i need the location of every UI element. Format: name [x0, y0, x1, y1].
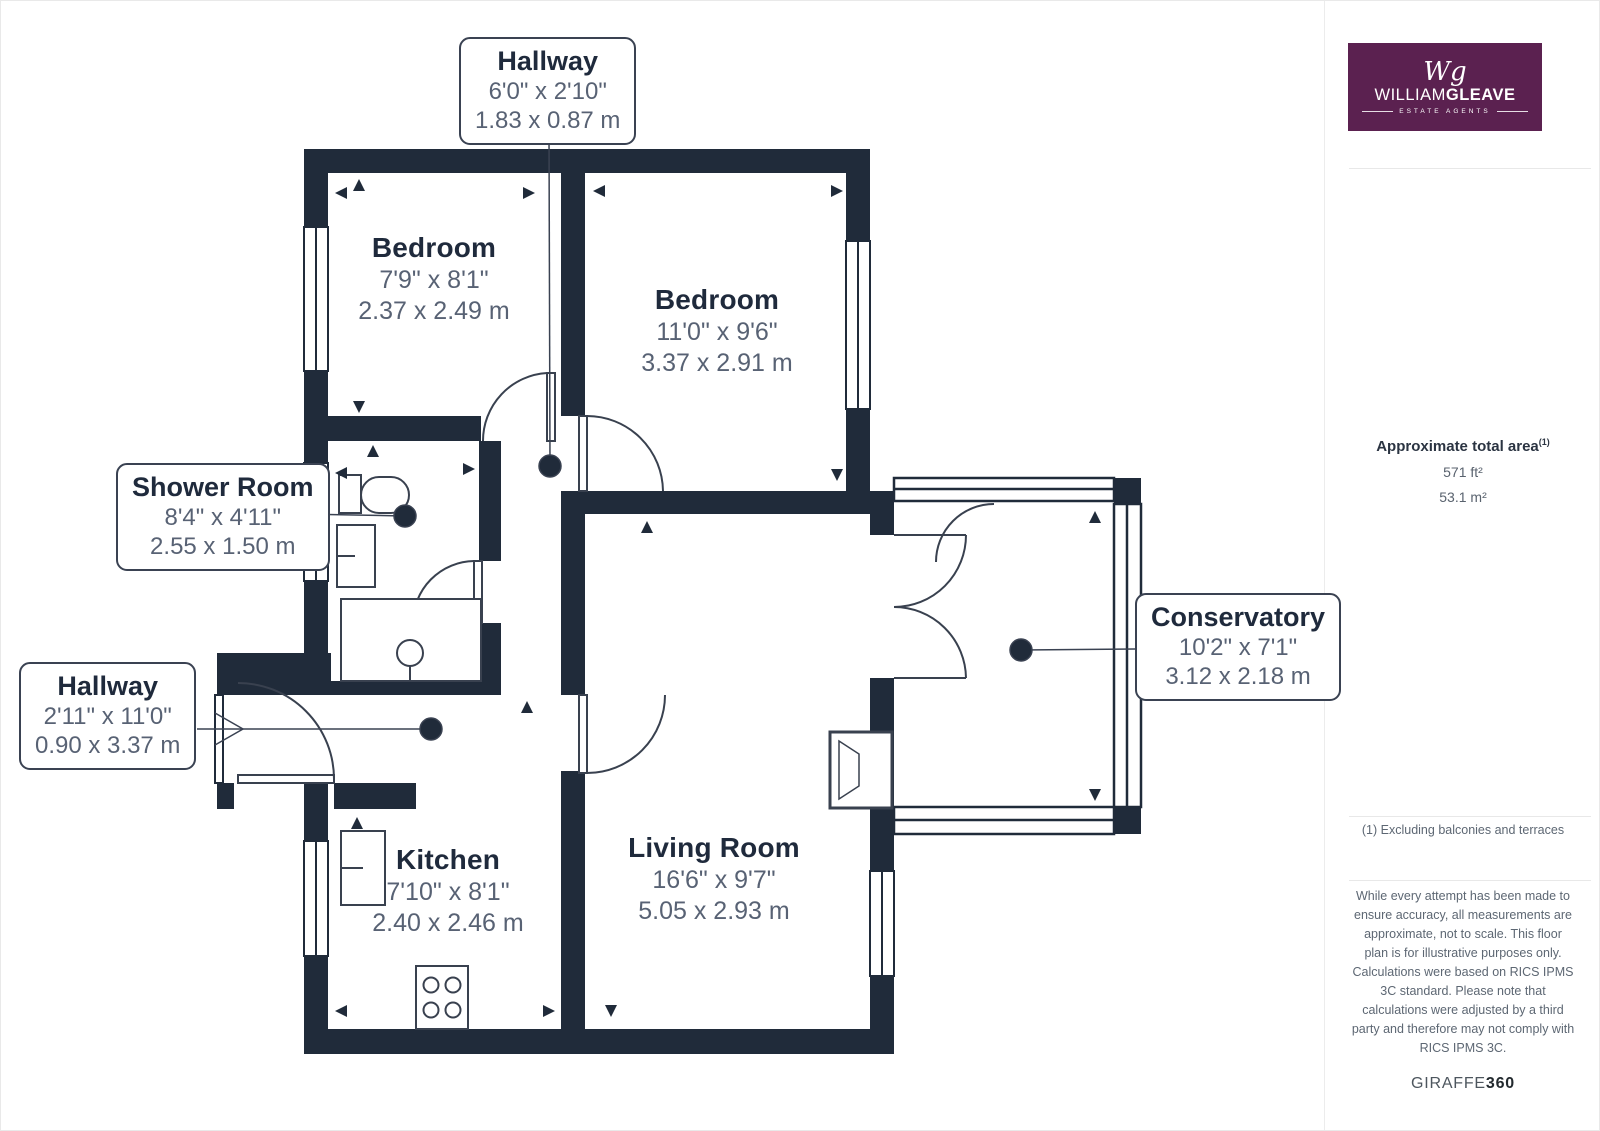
sidebar-divider: [1349, 816, 1591, 817]
total-area-title-text: Approximate total area: [1376, 438, 1539, 455]
room-label-bedroom-2: Bedroom 11'0" x 9'6" 3.37 x 2.91 m: [641, 284, 792, 378]
callout-name: Hallway: [475, 46, 620, 77]
agency-name-first: WILLIAM: [1375, 86, 1446, 104]
room-dim-imperial: 7'9" x 8'1": [358, 266, 509, 295]
disclaimer-accuracy: While every attempt has been made to ens…: [1351, 887, 1575, 963]
tagline-text: ESTATE AGENTS: [1399, 108, 1491, 115]
sidebar-divider: [1349, 168, 1591, 169]
room-label-kitchen: Kitchen 7'10" x 8'1" 2.40 x 2.46 m: [372, 844, 523, 938]
room-label-living-room: Living Room 16'6" x 9'7" 5.05 x 2.93 m: [628, 832, 800, 926]
total-area-sqft: 571 ft²: [1325, 464, 1600, 480]
callout-hallway-top: Hallway 6'0" x 2'10" 1.83 x 0.87 m: [459, 37, 636, 145]
agency-name: WILLIAMGLEAVE: [1375, 86, 1516, 105]
sidebar-divider: [1349, 880, 1591, 881]
agency-name-last: GLEAVE: [1446, 86, 1516, 104]
room-name: Living Room: [628, 832, 800, 864]
callout-name: Conservatory: [1151, 602, 1325, 633]
agency-logo: Wg WILLIAMGLEAVE ESTATE AGENTS: [1348, 43, 1542, 131]
floorplan-page: Bedroom 7'9" x 8'1" 2.37 x 2.49 m Bedroo…: [0, 0, 1600, 1131]
fixtures: [337, 475, 892, 1029]
giraffe360-text: GIRAFFE: [1411, 1075, 1486, 1092]
room-name: Kitchen: [372, 844, 523, 876]
callout-dim-imperial: 6'0" x 2'10": [475, 78, 620, 106]
room-name: Bedroom: [358, 232, 509, 264]
callout-conservatory: Conservatory 10'2" x 7'1" 3.12 x 2.18 m: [1135, 593, 1341, 701]
total-area-superscript: (1): [1539, 437, 1550, 447]
callout-hallway-left: Hallway 2'11" x 11'0" 0.90 x 3.37 m: [19, 662, 196, 770]
room-label-bedroom-1: Bedroom 7'9" x 8'1" 2.37 x 2.49 m: [358, 232, 509, 326]
callout-name: Hallway: [35, 671, 180, 702]
room-dim-metric: 2.37 x 2.49 m: [358, 297, 509, 326]
giraffe360-brand: GIRAFFE360: [1325, 1075, 1600, 1093]
total-area-title: Approximate total area(1): [1325, 437, 1600, 455]
floor-plan: Bedroom 7'9" x 8'1" 2.37 x 2.49 m Bedroo…: [1, 1, 1331, 1131]
room-dim-metric: 2.40 x 2.46 m: [372, 909, 523, 938]
callout-dim-imperial: 8'4" x 4'11": [132, 504, 314, 532]
callout-name: Shower Room: [132, 472, 314, 503]
wg-monogram-icon: Wg: [1423, 60, 1466, 84]
callout-dim-imperial: 2'11" x 11'0": [35, 703, 180, 731]
room-name: Bedroom: [641, 284, 792, 316]
room-dim-imperial: 7'10" x 8'1": [372, 878, 523, 907]
callout-dim-imperial: 10'2" x 7'1": [1151, 634, 1325, 662]
callout-dim-metric: 3.12 x 2.18 m: [1151, 663, 1325, 691]
agency-tagline: ESTATE AGENTS: [1362, 108, 1529, 115]
callout-shower-room: Shower Room 8'4" x 4'11" 2.55 x 1.50 m: [116, 463, 330, 571]
callout-dim-metric: 1.83 x 0.87 m: [475, 107, 620, 135]
total-area-sqm: 53.1 m²: [1325, 489, 1600, 505]
room-dim-metric: 5.05 x 2.93 m: [628, 897, 800, 926]
disclaimer-rics: Calculations were based on RICS IPMS 3C …: [1351, 963, 1575, 1058]
callout-dim-metric: 2.55 x 1.50 m: [132, 533, 314, 561]
info-sidebar: Wg WILLIAMGLEAVE ESTATE AGENTS Approxima…: [1324, 1, 1600, 1131]
room-dim-metric: 3.37 x 2.91 m: [641, 349, 792, 378]
callout-dim-metric: 0.90 x 3.37 m: [35, 732, 180, 760]
total-area-block: Approximate total area(1) 571 ft² 53.1 m…: [1325, 437, 1600, 505]
room-dim-imperial: 11'0" x 9'6": [641, 318, 792, 347]
room-dim-imperial: 16'6" x 9'7": [628, 866, 800, 895]
area-footnote: (1) Excluding balconies and terraces: [1345, 823, 1581, 837]
giraffe360-number: 360: [1486, 1075, 1515, 1092]
tagline-rule-left: [1362, 111, 1394, 112]
tagline-rule-right: [1497, 111, 1529, 112]
